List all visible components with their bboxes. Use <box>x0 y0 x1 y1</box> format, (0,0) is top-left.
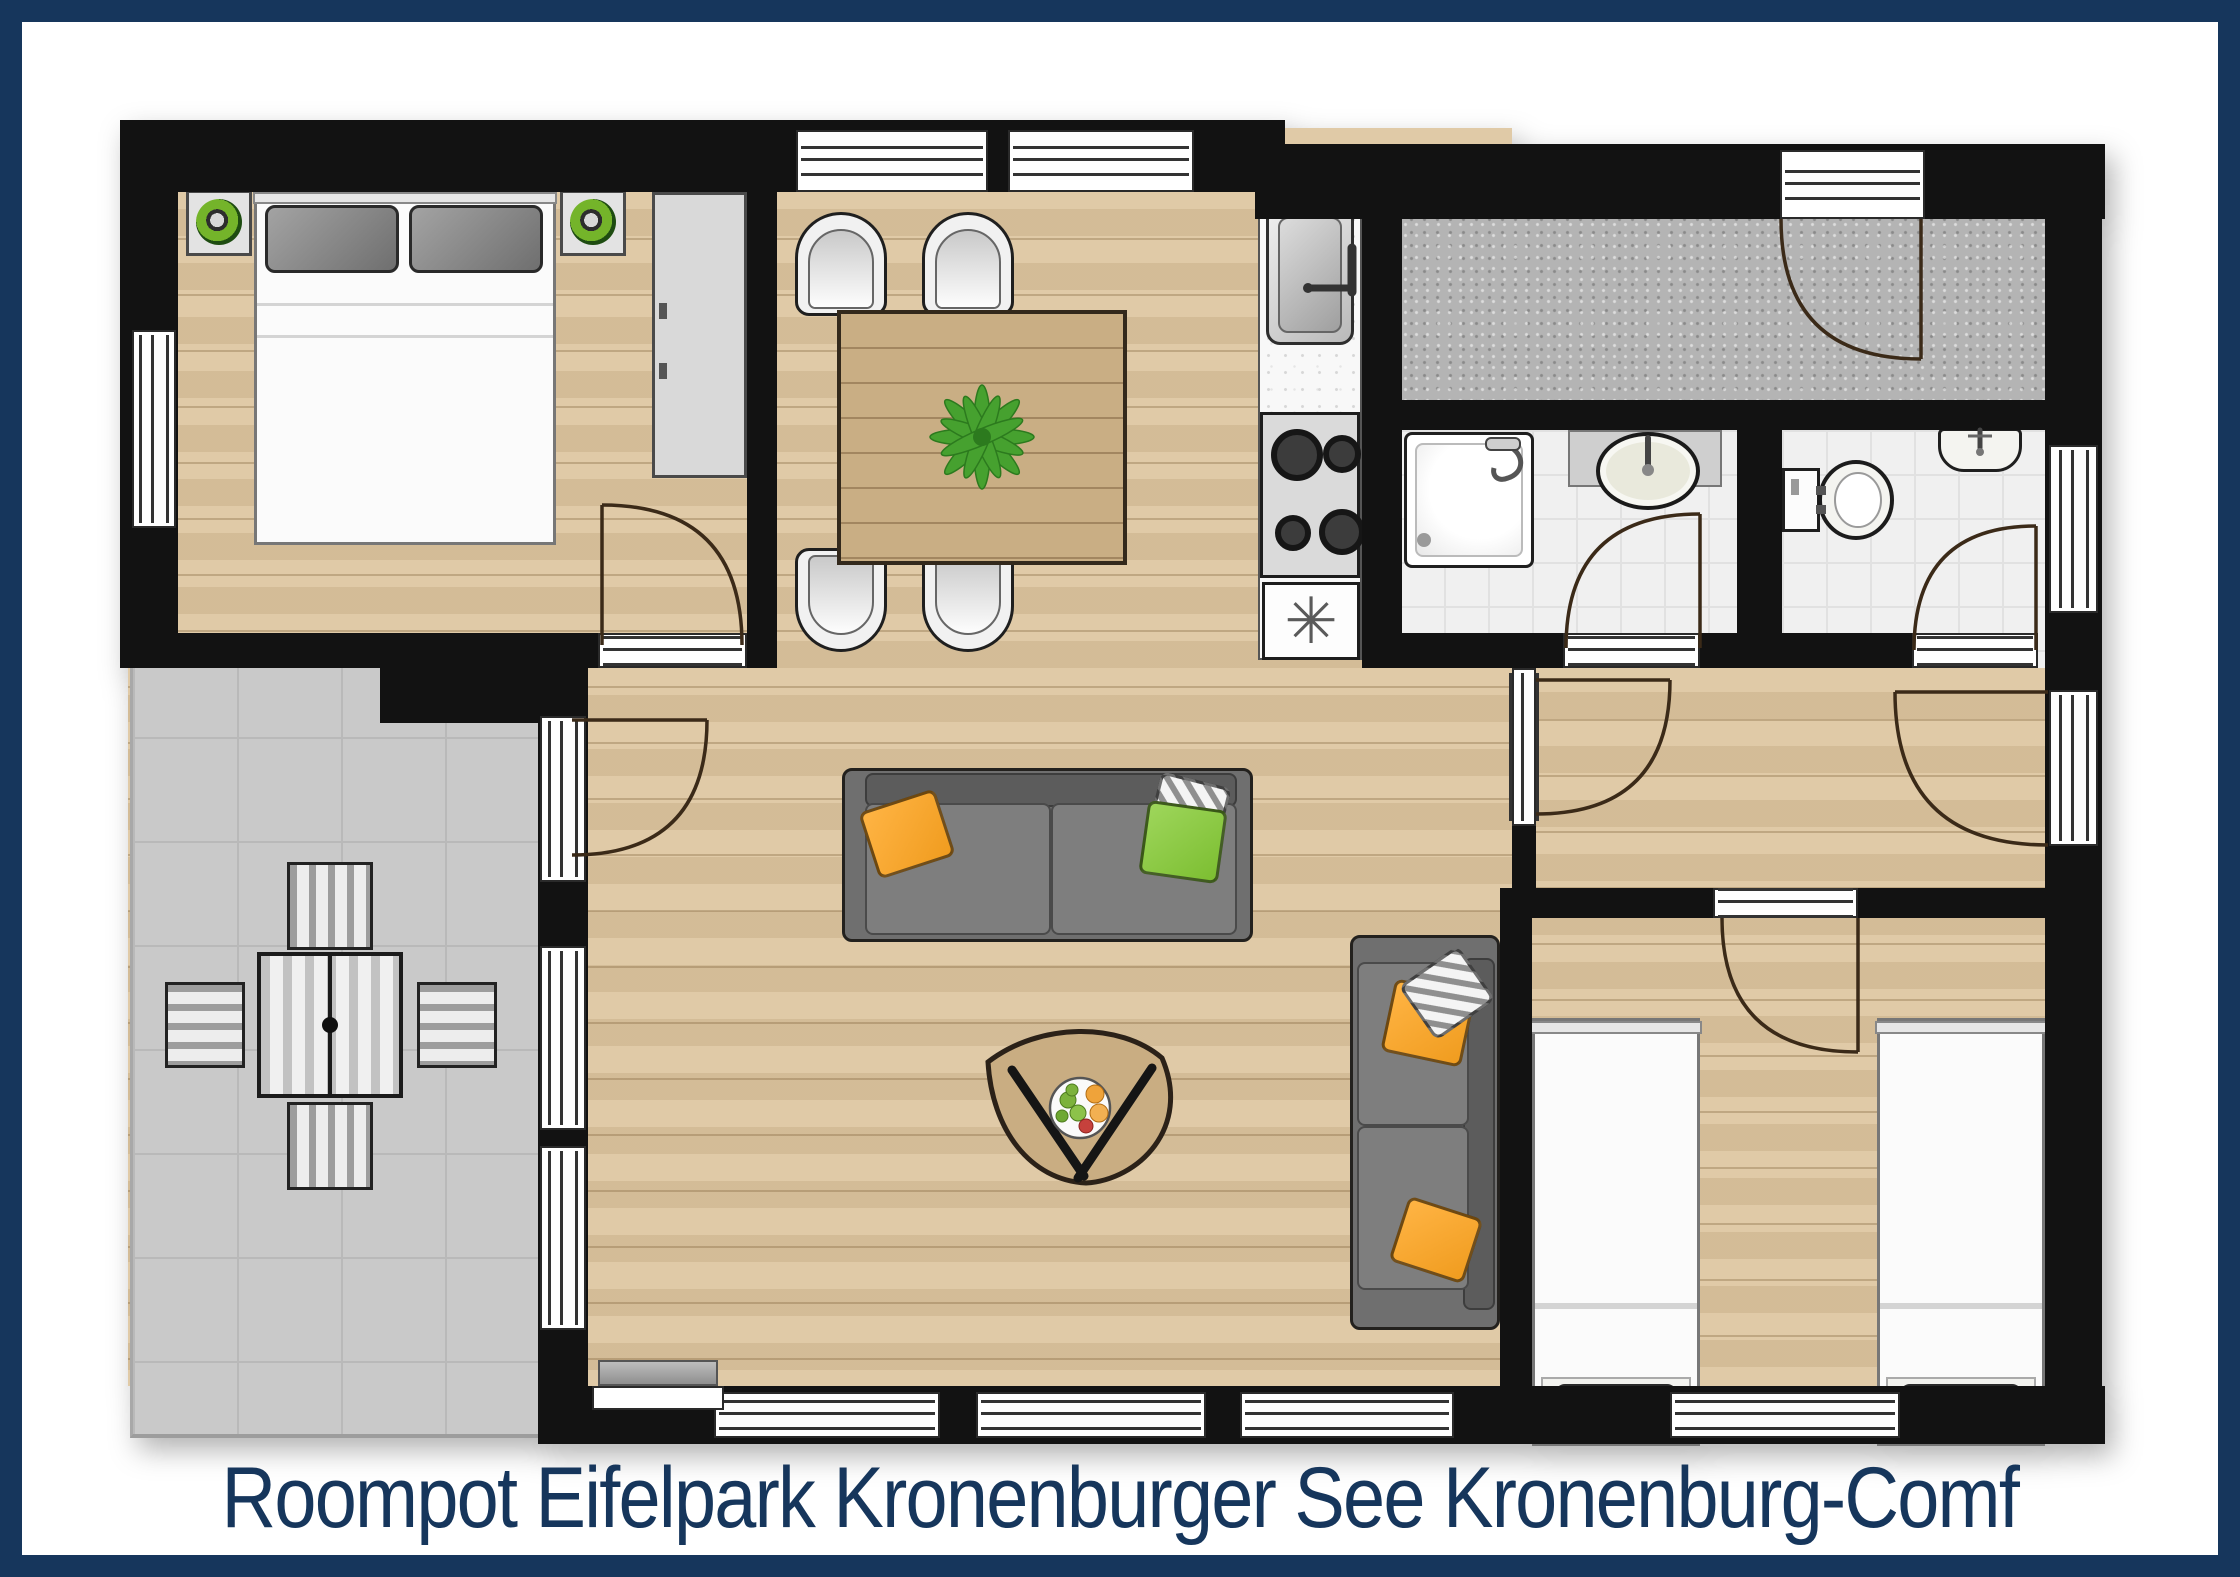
terrace-door-panel <box>540 716 586 882</box>
window-south-1 <box>714 1392 940 1438</box>
wall-bathroom-south <box>1400 633 1563 668</box>
washbasin <box>1596 432 1700 510</box>
window-glass <box>548 951 578 1125</box>
chair-seat <box>808 229 874 309</box>
pillow <box>409 205 543 273</box>
window-dining-1 <box>796 130 988 192</box>
bed-board <box>1875 1021 2047 1034</box>
hall-partition-glass <box>1512 668 1536 826</box>
duvet-seam <box>1535 1303 1697 1309</box>
sofa-large <box>842 768 1253 942</box>
outdoor-chair <box>287 1102 373 1190</box>
window-toilet-east <box>2049 445 2098 613</box>
lamp-left-icon <box>196 199 242 245</box>
threshold-lines <box>603 636 742 666</box>
toilet-door-threshold <box>1912 633 2038 668</box>
duvet-seam <box>257 303 553 306</box>
window-glass <box>548 1151 578 1325</box>
wall-hall-south <box>1400 400 2045 430</box>
single-bed-right <box>1877 1018 2045 1446</box>
window-south-2 <box>976 1392 1206 1438</box>
double-bed <box>254 189 556 545</box>
window-dining-2 <box>1008 130 1194 192</box>
window-glass <box>139 335 169 523</box>
window-bedroom-west <box>132 330 176 528</box>
wall-twinroom-west <box>1500 888 1532 1444</box>
flush-button <box>1791 479 1799 495</box>
chair-seat <box>935 229 1001 309</box>
freezer: ✳ <box>1262 582 1360 660</box>
outdoor-chair <box>417 982 497 1068</box>
window-glass <box>1245 1400 1449 1430</box>
toilet-cistern <box>1782 468 1820 532</box>
bed-board <box>1530 1021 1702 1034</box>
window-living-west-1 <box>540 946 586 1130</box>
burner-icon <box>1323 435 1361 473</box>
sofa-small <box>1350 935 1500 1330</box>
wall-bath-toilet-divider <box>1737 430 1782 668</box>
duvet-seam <box>257 335 553 338</box>
wall-bathroom-south <box>1700 633 1737 668</box>
doormat <box>598 1360 718 1386</box>
terrace-step <box>592 1386 724 1410</box>
lamp-right-icon <box>570 199 616 245</box>
window-south-3 <box>1240 1392 1454 1438</box>
bathroom-door-threshold <box>1563 633 1700 668</box>
dining-table <box>837 310 1127 565</box>
chair-seat <box>935 555 1001 635</box>
caption-text: Roompot Eifelpark Kronenburger See Krone… <box>222 1448 2019 1548</box>
outdoor-table <box>257 952 403 1098</box>
window-twinroom-south <box>1670 1392 1900 1438</box>
shower-tray <box>1415 443 1523 557</box>
door-glass <box>1785 170 1920 200</box>
window-glass <box>1509 673 1539 821</box>
hand-basin <box>1938 428 2022 472</box>
wall-bedroom-east <box>747 120 777 665</box>
single-bed-left <box>1532 1018 1700 1446</box>
bedroom-door-threshold <box>598 633 747 668</box>
front-door-threshold <box>1780 150 1925 219</box>
shower <box>1404 432 1534 568</box>
wardrobe-handle <box>659 363 667 379</box>
floor-plan: ✳ <box>0 0 2240 1577</box>
cushion-green <box>1138 800 1228 884</box>
kitchen-sink <box>1266 205 1354 345</box>
burner-icon <box>1271 429 1323 481</box>
burner-icon <box>1275 515 1311 551</box>
pillow <box>265 205 399 273</box>
window-living-west-2 <box>540 1146 586 1330</box>
window-glass <box>1013 146 1189 176</box>
wall-twinroom-north <box>1532 888 1713 918</box>
wall-kitchen-east <box>1362 144 1402 668</box>
wall-twinroom-north <box>1858 888 2045 918</box>
threshold-lines <box>1568 636 1695 666</box>
wall-hall-west-stub <box>1512 826 1536 888</box>
duvet-seam <box>1880 1303 2042 1309</box>
window-glass <box>1675 1400 1895 1430</box>
floor-plan-page: ✳ <box>0 0 2240 1577</box>
freezer-snowflake-icon: ✳ <box>1284 589 1338 653</box>
wardrobe <box>652 192 747 478</box>
window-glass <box>981 1400 1201 1430</box>
dining-chair <box>795 212 887 316</box>
wardrobe-handle <box>659 303 667 319</box>
gas-hob <box>1260 412 1360 578</box>
sink-basin <box>1278 217 1342 333</box>
window-glass <box>719 1400 935 1430</box>
wall-toilet-south <box>1782 633 1912 668</box>
chair-seat <box>808 555 874 635</box>
side-door-panel <box>2049 690 2098 846</box>
outdoor-chair <box>165 982 245 1068</box>
double-bed-headboard <box>253 192 557 204</box>
window-glass <box>801 146 983 176</box>
threshold-lines <box>1718 888 1853 918</box>
door-glass <box>2059 695 2089 841</box>
caption: Roompot Eifelpark Kronenburger See Krone… <box>0 1448 2240 1548</box>
twinroom-door-threshold <box>1713 888 1858 918</box>
dining-chair <box>922 212 1014 316</box>
threshold-lines <box>1917 636 2033 666</box>
window-glass <box>2059 450 2089 608</box>
outdoor-chair <box>287 862 373 950</box>
room-entrance-hall-floor <box>1400 219 2045 430</box>
door-glass <box>548 721 578 877</box>
burner-icon <box>1319 509 1365 555</box>
